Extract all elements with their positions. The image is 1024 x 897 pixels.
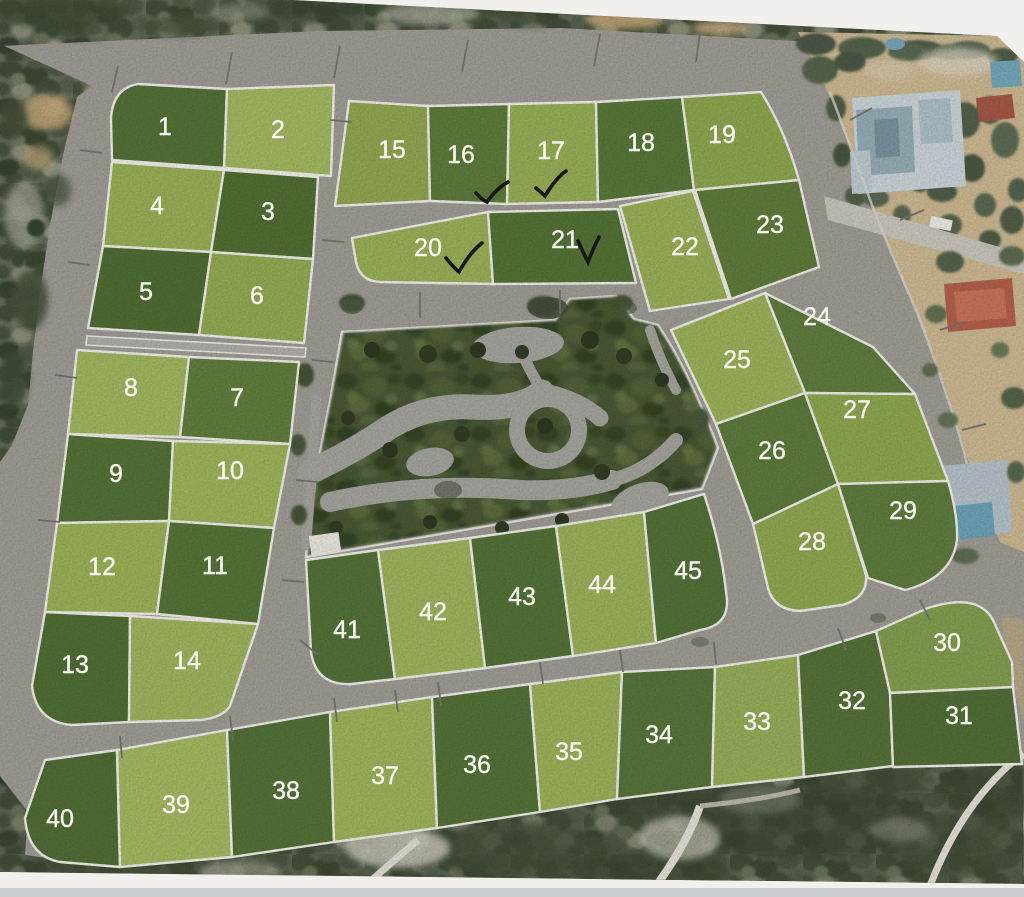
- svg-text:39: 39: [162, 791, 190, 819]
- svg-text:7: 7: [230, 384, 244, 412]
- svg-text:20: 20: [414, 234, 442, 262]
- svg-text:44: 44: [588, 571, 616, 599]
- svg-text:25: 25: [723, 346, 751, 374]
- svg-text:29: 29: [889, 497, 917, 525]
- svg-text:12: 12: [88, 553, 116, 581]
- svg-text:4: 4: [150, 192, 164, 220]
- svg-text:18: 18: [627, 129, 655, 157]
- svg-text:9: 9: [109, 460, 123, 488]
- svg-text:37: 37: [371, 762, 399, 790]
- svg-text:31: 31: [945, 702, 973, 730]
- svg-text:17: 17: [537, 137, 565, 165]
- svg-text:28: 28: [798, 528, 826, 556]
- svg-text:19: 19: [708, 121, 736, 149]
- svg-text:43: 43: [508, 583, 536, 611]
- svg-text:2: 2: [271, 116, 285, 144]
- svg-text:13: 13: [61, 651, 89, 679]
- svg-text:23: 23: [756, 211, 784, 239]
- svg-text:26: 26: [758, 437, 786, 465]
- svg-text:15: 15: [378, 136, 406, 164]
- svg-text:11: 11: [202, 552, 228, 580]
- svg-text:22: 22: [671, 233, 699, 261]
- svg-text:24: 24: [803, 303, 831, 331]
- svg-text:3: 3: [261, 198, 275, 226]
- svg-text:35: 35: [555, 738, 583, 766]
- svg-text:14: 14: [173, 647, 201, 675]
- svg-text:10: 10: [216, 457, 244, 485]
- svg-text:40: 40: [46, 805, 74, 833]
- svg-text:5: 5: [139, 278, 153, 306]
- svg-text:42: 42: [419, 598, 447, 626]
- svg-text:21: 21: [551, 226, 579, 254]
- svg-text:30: 30: [933, 629, 961, 657]
- svg-text:8: 8: [124, 374, 138, 402]
- svg-text:6: 6: [250, 282, 264, 310]
- svg-text:16: 16: [447, 141, 475, 169]
- svg-text:34: 34: [645, 721, 673, 749]
- svg-text:41: 41: [333, 616, 361, 644]
- svg-text:1: 1: [158, 113, 172, 141]
- svg-text:45: 45: [674, 557, 702, 585]
- svg-text:36: 36: [463, 751, 491, 779]
- svg-text:27: 27: [843, 396, 871, 424]
- svg-text:33: 33: [743, 708, 771, 736]
- svg-text:38: 38: [272, 777, 300, 805]
- svg-text:32: 32: [838, 687, 866, 715]
